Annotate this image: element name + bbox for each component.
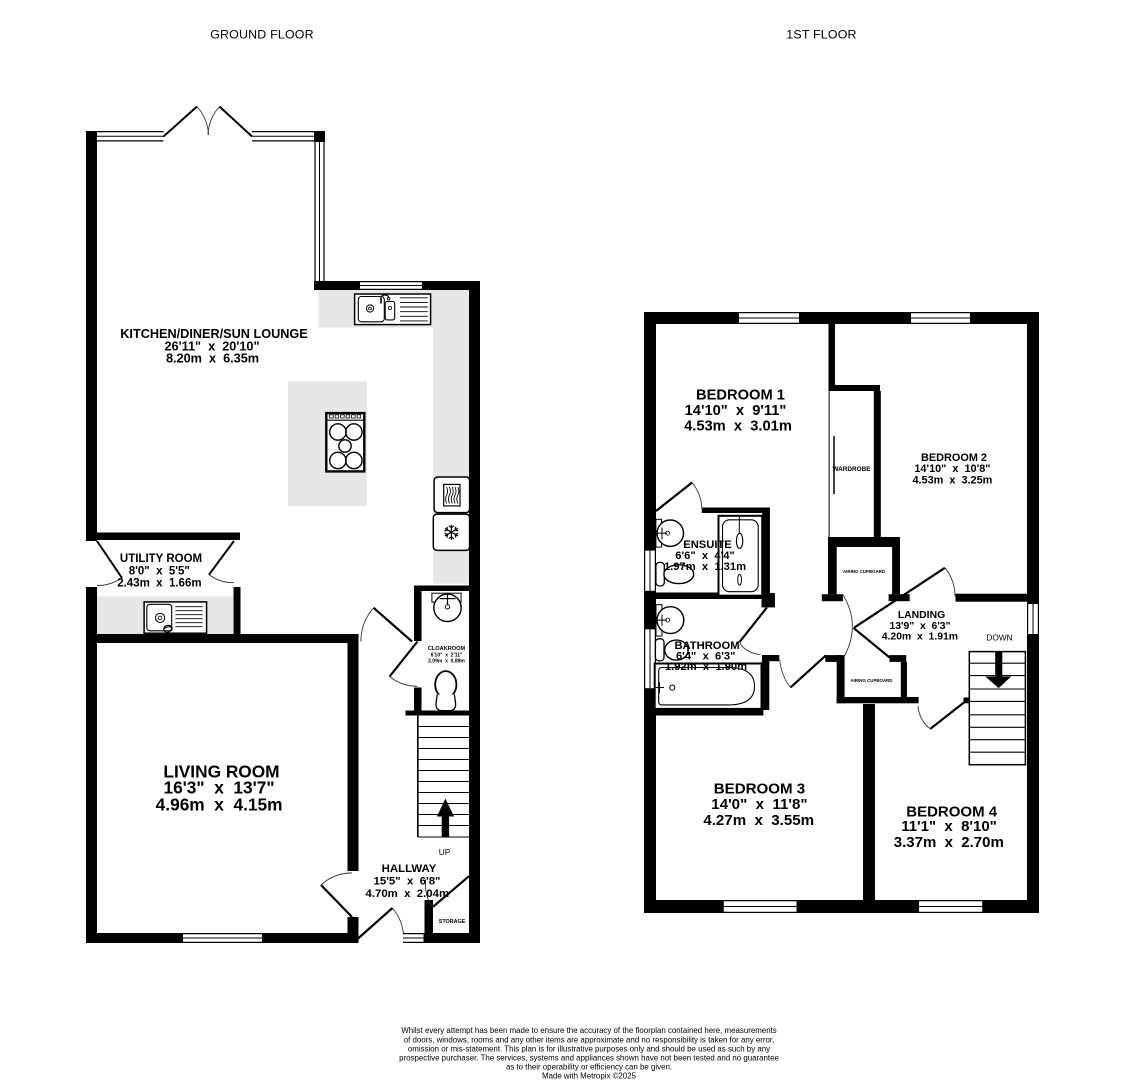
svg-text:4.53m x 3.01m: 4.53m x 3.01m xyxy=(684,419,792,435)
svg-text:14'10" x 9'11": 14'10" x 9'11" xyxy=(685,403,787,419)
svg-text:11'1" x 8'10": 11'1" x 8'10" xyxy=(901,818,997,835)
svg-text:1ST FLOOR: 1ST FLOOR xyxy=(786,28,856,42)
svg-text:UP: UP xyxy=(439,847,451,857)
svg-text:8'0" x 5'5": 8'0" x 5'5" xyxy=(129,566,190,578)
svg-text:UTILITY ROOM: UTILITY ROOM xyxy=(120,553,202,565)
svg-text:6'6" x 4'4": 6'6" x 4'4" xyxy=(675,550,734,562)
svg-text:Whilst every attempt has been: Whilst every attempt has been made to en… xyxy=(401,1026,777,1035)
svg-text:BEDROOM 3: BEDROOM 3 xyxy=(714,781,805,798)
svg-text:4.70m x 2.04m: 4.70m x 2.04m xyxy=(366,888,450,900)
svg-text:as to their operability or eff: as to their operability or efficiency ca… xyxy=(506,1063,672,1072)
svg-text:HALLWAY: HALLWAY xyxy=(382,863,437,875)
svg-text:13'9" x 6'3": 13'9" x 6'3" xyxy=(889,621,950,632)
svg-text:14'10" x 10'8": 14'10" x 10'8" xyxy=(914,463,990,475)
svg-text:14'0" x 11'8": 14'0" x 11'8" xyxy=(711,796,807,813)
svg-text:1.97m x 1.31m: 1.97m x 1.31m xyxy=(664,561,746,573)
svg-text:15'5" x 6'8": 15'5" x 6'8" xyxy=(374,875,441,887)
svg-text:LANDING: LANDING xyxy=(898,610,945,621)
svg-text:Made with Metropix ©2025: Made with Metropix ©2025 xyxy=(542,1071,637,1080)
svg-text:WARDROBE: WARDROBE xyxy=(833,466,872,473)
svg-text:CLOAKROOM: CLOAKROOM xyxy=(428,646,466,652)
svg-text:GROUND FLOOR: GROUND FLOOR xyxy=(210,28,314,42)
svg-text:6'10" x 2'11": 6'10" x 2'11" xyxy=(431,652,463,658)
svg-text:2.43m x 1.66m: 2.43m x 1.66m xyxy=(117,578,201,590)
svg-text:AIRING CUPBOARD: AIRING CUPBOARD xyxy=(843,569,885,574)
svg-text:of doors, windows, rooms and a: of doors, windows, rooms and any other i… xyxy=(404,1035,775,1044)
svg-text:4.20m x 1.91m: 4.20m x 1.91m xyxy=(882,632,958,643)
svg-text:omission or mis-statement. Thi: omission or mis-statement. This plan is … xyxy=(408,1044,770,1053)
svg-text:4.53m x 3.25m: 4.53m x 3.25m xyxy=(912,475,992,487)
svg-text:1.92m x 1.90m: 1.92m x 1.90m xyxy=(665,661,747,673)
svg-text:BEDROOM 1: BEDROOM 1 xyxy=(696,387,785,403)
svg-text:8.20m x 6.35m: 8.20m x 6.35m xyxy=(166,352,259,366)
svg-text:AIRING CUPBOARD: AIRING CUPBOARD xyxy=(851,678,893,683)
svg-text:4.27m x 3.55m: 4.27m x 3.55m xyxy=(703,812,814,829)
svg-text:2.09m x 0.89m: 2.09m x 0.89m xyxy=(428,659,465,665)
svg-text:3.37m x 2.70m: 3.37m x 2.70m xyxy=(894,834,1004,851)
svg-text:STORAGE: STORAGE xyxy=(439,919,466,925)
svg-text:prospective purchaser. The ser: prospective purchaser. The services, sys… xyxy=(399,1054,779,1063)
svg-text:DOWN: DOWN xyxy=(986,633,1012,643)
svg-text:4.96m x 4.15m: 4.96m x 4.15m xyxy=(156,794,283,814)
